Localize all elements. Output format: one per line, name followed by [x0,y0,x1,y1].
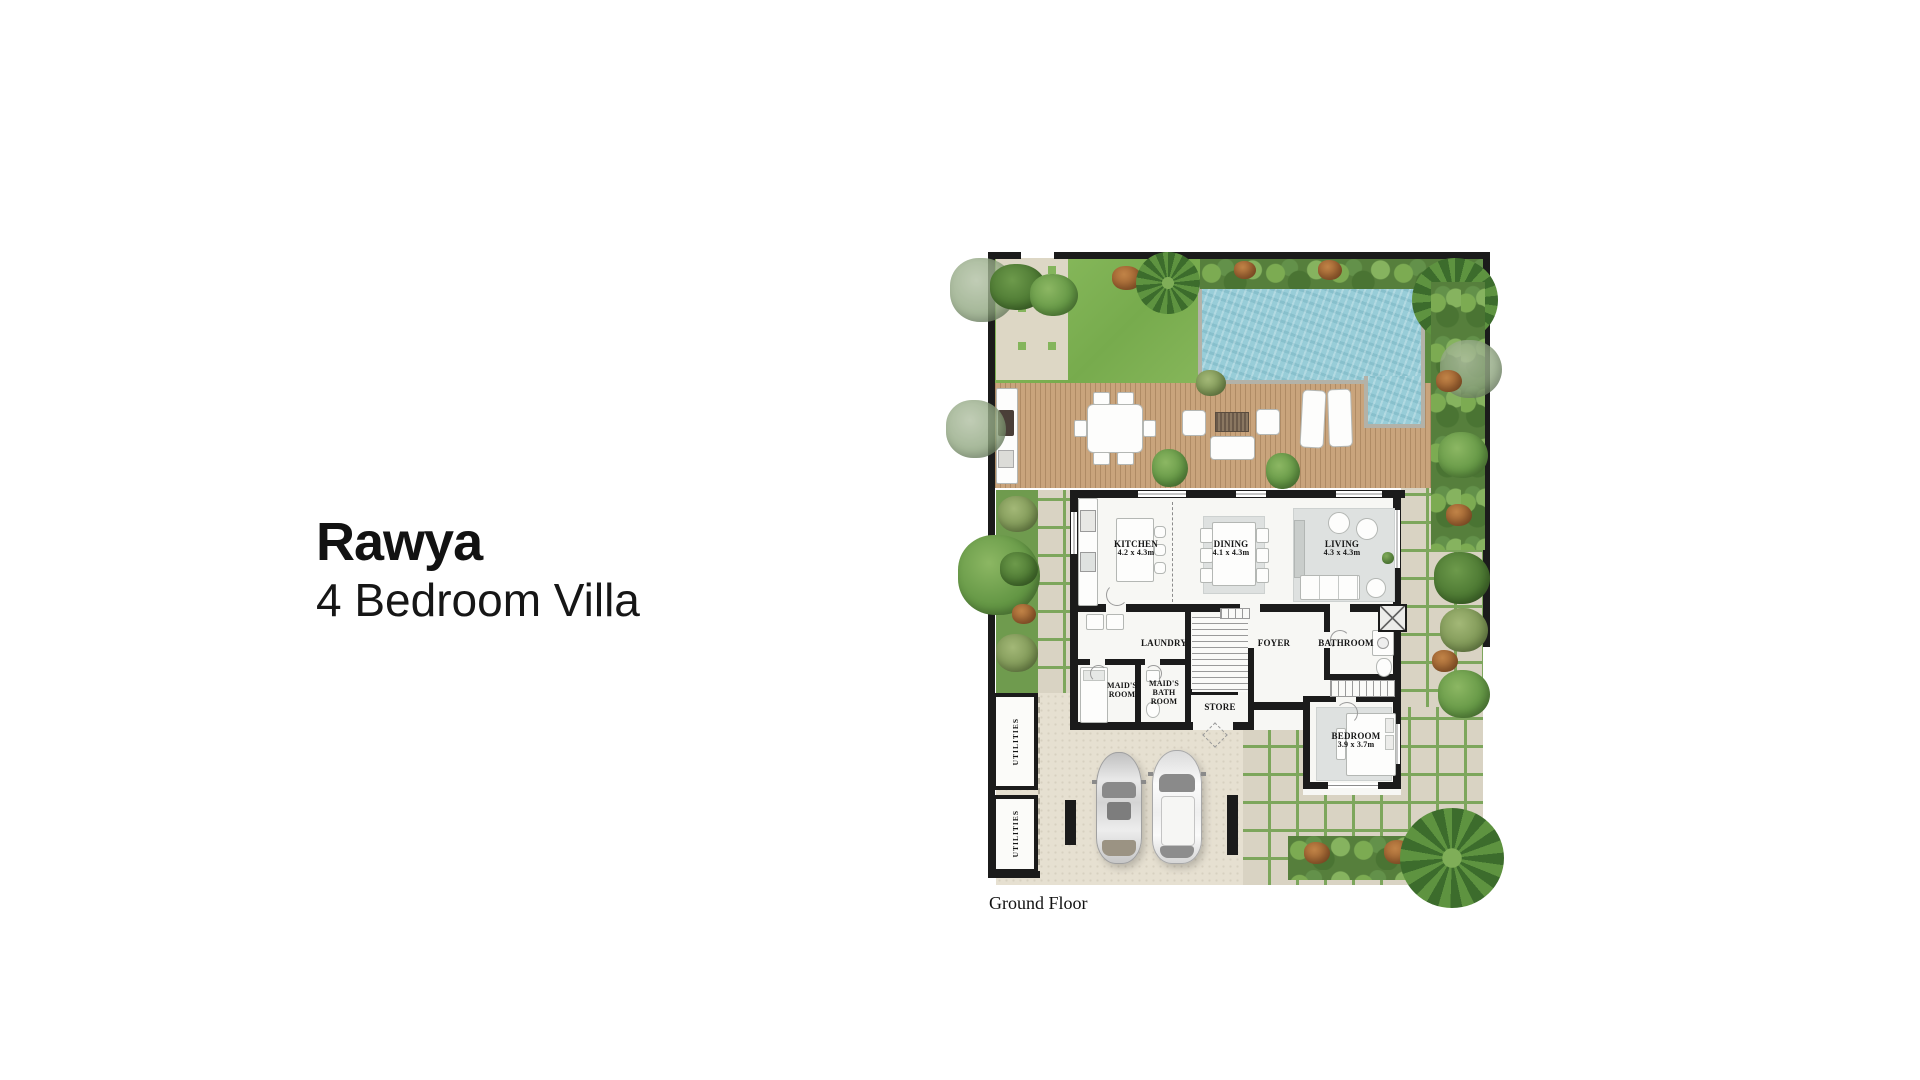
utilities-room: UTILITIES [992,795,1038,873]
car-roof [1161,796,1195,846]
stool [1154,562,1166,574]
swimming-pool [1198,281,1425,384]
shrub [996,634,1038,672]
wall [1185,612,1191,730]
forecourt [1038,693,1070,730]
site-wall-top [1054,252,1483,259]
dining-chair [1200,568,1213,583]
deck-sofa [1210,436,1255,460]
door-arc [1090,665,1107,682]
toilet [1376,658,1392,677]
round-chair [1328,512,1350,534]
swimming-pool-step [1364,376,1425,428]
sink [1080,552,1096,572]
deck-chair [1093,452,1110,465]
basin [1377,637,1389,649]
tree [946,400,1006,458]
indoor-plant [1382,552,1394,564]
deck-planter [1152,449,1188,487]
deck-chair [1117,452,1134,465]
car-mirror [1141,780,1146,784]
sun-lounger [1327,389,1353,448]
utilities-label: UTILITIES [1011,810,1020,857]
shrub [998,496,1038,532]
left-path [1038,490,1070,722]
villa-title: Rawya [316,515,640,569]
shrub [1440,608,1488,652]
shrub [1012,604,1036,624]
wall [1233,722,1254,730]
coffee-table [1215,412,1249,432]
stove [1080,510,1096,532]
lounge-armchair [1256,409,1280,435]
deck-chair [1093,392,1110,405]
room-label-living: LIVING4.3 x 4.3m [1310,539,1374,558]
shrub [1234,261,1256,279]
room-label-dining: DINING4.1 x 4.3m [1199,539,1263,558]
car-mirror [1201,772,1206,776]
window [1236,491,1266,497]
window [1071,512,1077,554]
door-arc [1106,584,1128,606]
wall [1303,782,1328,789]
car-rear-window [1160,846,1194,858]
utilities-label: UTILITIES [1011,718,1020,765]
shrub [1304,842,1330,864]
palm-tree [1136,252,1200,314]
door-arc [1336,702,1358,724]
shrub [1438,432,1488,478]
deck-chair [1074,420,1087,437]
deck-planter [1266,453,1300,489]
car-rear-window [1102,840,1136,856]
floor-caption: Ground Floor [989,893,1088,914]
stairs-upper-flight [1220,608,1250,619]
shrub [1438,670,1490,718]
washer [1086,614,1104,630]
shrub [1446,504,1472,526]
villa-subtitle: 4 Bedroom Villa [316,577,640,623]
kitchen-dining-divider [1172,502,1173,602]
title-block: Rawya 4 Bedroom Villa [316,515,640,623]
shrub [1432,650,1458,672]
wardrobe [1330,680,1395,697]
floor-plan: UTILITIES UTILITIES KITCHEN4 [988,252,1493,885]
deck-chair [1117,392,1134,405]
window [1336,491,1382,497]
wall [1260,604,1330,612]
stairs [1192,617,1248,692]
car-mirror [1148,772,1153,776]
wall [1378,782,1401,789]
room-label-laundry: LAUNDRY [1134,638,1194,648]
wall [1248,648,1254,730]
shrub [1000,552,1038,586]
wall [1303,702,1310,789]
room-label-foyer: FOYER [1244,638,1304,648]
wall [1070,722,1193,730]
room-label-bedroom: BEDROOM3.9 x 3.7m [1321,731,1391,750]
outdoor-sink [998,450,1014,468]
room-label-maids-room: MAID'S ROOM [1100,682,1144,700]
side-chair [1366,578,1386,598]
window [1138,491,1186,497]
car-windshield [1102,782,1136,798]
room-label-kitchen: KITCHEN4.2 x 4.3m [1104,539,1168,558]
shower [1378,604,1407,632]
wall [1254,702,1303,710]
deck-chair [1143,420,1156,437]
wall [1324,612,1330,632]
shrub [1196,370,1226,396]
tv-unit [1294,520,1305,578]
wall [1160,659,1185,665]
pillar [1227,795,1238,855]
site-wall-top [995,252,1021,259]
room-label-store: STORE [1194,702,1246,712]
room-label-maids-bath: MAID'S BATH ROOM [1142,680,1186,707]
shrub [1436,370,1462,392]
shrub [1030,274,1078,316]
stool [1154,526,1166,538]
wall [1070,659,1090,665]
utilities-room: UTILITIES [992,693,1038,790]
window [1328,783,1378,788]
shrub [1434,552,1490,604]
palm-tree [1400,808,1504,908]
living-sofa [1300,575,1360,600]
dryer [1106,614,1124,630]
shrub [1318,260,1342,280]
deck-dining-table [1087,404,1143,453]
car-mirror [1092,780,1097,784]
lounge-armchair [1182,410,1206,436]
room-label-bathroom: BATHROOM [1314,638,1378,648]
dining-chair [1256,568,1269,583]
sun-lounger [1299,389,1326,448]
accordion-door [1038,697,1040,865]
car-windshield [1159,774,1195,792]
pillar [1065,800,1076,845]
car-sunroof [1107,802,1131,820]
